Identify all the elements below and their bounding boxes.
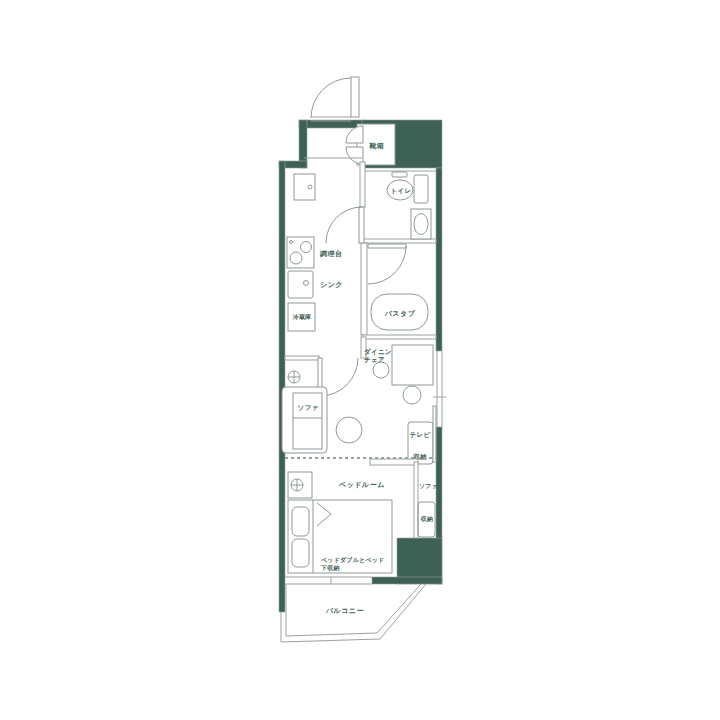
round-table-icon xyxy=(336,417,362,443)
balcony-label: バルコニー xyxy=(325,607,364,614)
sink-icon xyxy=(288,271,313,298)
shoe-box-label: 靴箱 xyxy=(369,142,385,150)
column-mark-icon xyxy=(288,472,312,498)
floorplan-svg: 靴箱 トイレ バスタブ xyxy=(0,0,720,720)
pillow-icon xyxy=(292,539,309,567)
shoe-box: 靴箱 xyxy=(346,124,395,165)
sink-label: シンク xyxy=(320,281,343,289)
bedroom-label: ベッドルーム xyxy=(338,481,385,489)
column-mark-icon xyxy=(288,371,300,383)
toilet-label: トイレ xyxy=(391,187,412,195)
floorplan-canvas: 靴箱 トイレ バスタブ xyxy=(0,0,720,720)
bathtub-label: バスタブ xyxy=(384,309,416,318)
washroom-door xyxy=(326,207,364,243)
chair-icon xyxy=(403,386,421,404)
chair-icon xyxy=(373,362,389,378)
bathroom-door xyxy=(368,244,406,284)
pillow-icon xyxy=(292,507,309,536)
toilet-room: トイレ xyxy=(387,172,431,239)
bed-label-1: ベッドダブルとベッド xyxy=(320,556,384,564)
balcony-door xyxy=(285,577,372,584)
tv-label: テレビ xyxy=(410,431,431,438)
dining-table-icon xyxy=(392,345,433,385)
bed-label-2: 下収納 xyxy=(320,564,340,572)
bedroom-sofa-label: ソファ xyxy=(419,483,438,489)
sofa-label: ソファ xyxy=(298,404,319,411)
living-dining: ダイニングテーブル& チェア ソファ テレビ 収納 xyxy=(282,345,436,464)
bathroom: バスタブ xyxy=(371,294,428,330)
room-divider xyxy=(285,458,436,465)
kitchen-counter-label: 調理台 xyxy=(319,250,343,258)
entrance-door xyxy=(311,77,359,121)
bedroom-storage-label: 収納 xyxy=(421,515,433,523)
tv-icon xyxy=(433,406,436,462)
sofa-icon xyxy=(282,387,327,453)
stove-icon xyxy=(287,237,314,268)
refrigerator-label: 冷蔵庫 xyxy=(293,313,312,321)
closet-wall xyxy=(414,462,418,538)
kitchen: 調理台 シンク 冷蔵庫 xyxy=(287,174,343,331)
